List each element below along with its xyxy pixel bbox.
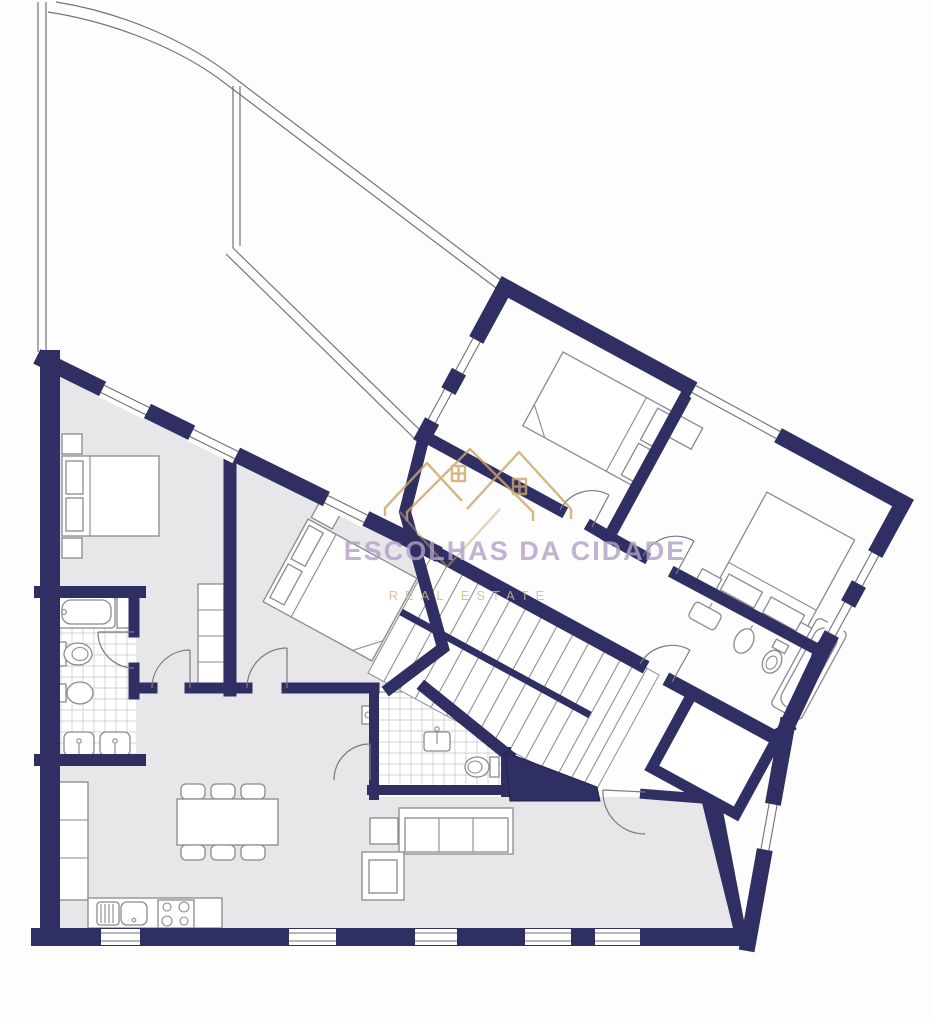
window	[525, 929, 571, 945]
window	[289, 929, 336, 945]
navy-wall-bedroom3	[592, 527, 604, 534]
watermark-title: ESCOLHAS DA CIDADE	[344, 536, 687, 566]
sofa-icon	[399, 808, 513, 854]
logo-window	[452, 466, 465, 481]
washbasin-icon	[100, 732, 130, 756]
dining-chair-icon	[241, 784, 265, 799]
window	[756, 803, 782, 851]
washbasin-icon	[64, 732, 94, 756]
nightstand-icon	[62, 434, 82, 454]
watermark-subtitle: REAL ESTATE	[389, 588, 552, 603]
armchair-icon	[362, 852, 404, 900]
floor-plan-page: ESCOLHAS DA CIDADE REAL ESTATE	[0, 0, 933, 1017]
dining-chair-icon	[181, 784, 205, 799]
nightstand-icon	[62, 538, 82, 558]
window	[690, 381, 783, 443]
window	[415, 929, 457, 945]
floor-plan-drawing: ESCOLHAS DA CIDADE REAL ESTATE	[0, 0, 933, 1017]
dining-chair-icon	[211, 845, 235, 860]
toilet-icon	[56, 642, 92, 666]
wardrobe-icon	[198, 584, 224, 686]
outline-unit	[38, 2, 506, 441]
bathtub-icon	[57, 596, 135, 628]
window	[101, 929, 140, 945]
dining-chair-icon	[181, 845, 205, 860]
window	[451, 336, 484, 376]
double-bed-icon	[62, 456, 159, 536]
dining-chair-icon	[211, 784, 235, 799]
bidet-icon	[56, 682, 93, 704]
stove-icon	[158, 900, 194, 928]
side-table-icon	[370, 818, 398, 844]
window	[595, 929, 640, 945]
toilet-icon	[758, 638, 790, 676]
bidet-icon	[730, 621, 761, 657]
toilet-icon	[465, 757, 499, 777]
dining-chair-icon	[241, 845, 265, 860]
dining-area	[177, 784, 278, 860]
kitchen-sink-icon	[97, 902, 147, 925]
dining-table-icon	[177, 799, 278, 845]
